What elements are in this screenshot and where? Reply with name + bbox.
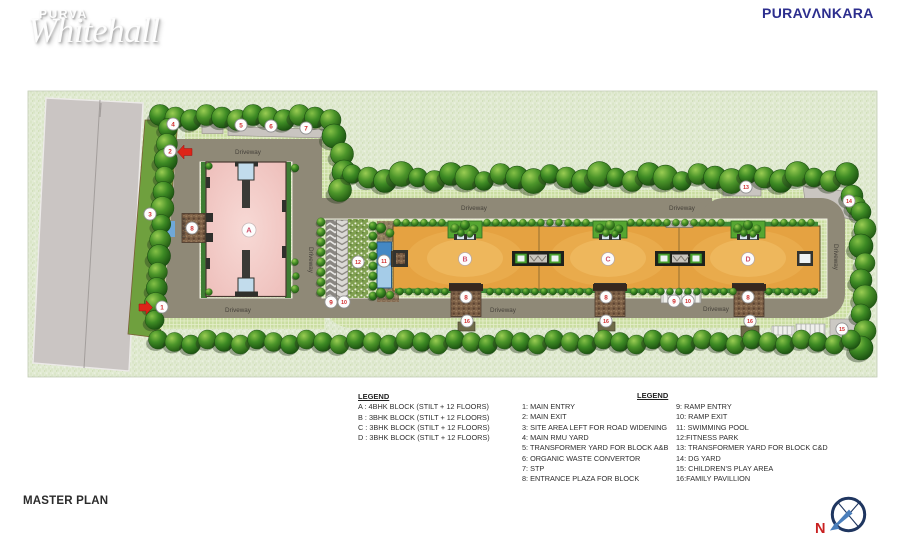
svg-text:8: 8 xyxy=(604,294,608,301)
svg-text:3: 3 xyxy=(148,211,152,218)
svg-text:Driveway: Driveway xyxy=(703,306,730,313)
svg-text:15: 15 xyxy=(839,327,845,333)
svg-text:Driveway: Driveway xyxy=(832,244,839,271)
svg-text:9: 9 xyxy=(672,298,676,305)
svg-text:Driveway: Driveway xyxy=(225,307,252,314)
svg-text:9: 9 xyxy=(329,299,333,306)
svg-text:10: 10 xyxy=(341,300,347,306)
svg-text:8: 8 xyxy=(746,294,750,301)
svg-text:Driveway: Driveway xyxy=(461,205,488,212)
svg-text:N: N xyxy=(815,521,825,537)
svg-text:11: 11 xyxy=(381,259,387,265)
svg-text:B: B xyxy=(462,256,467,263)
svg-text:Driveway: Driveway xyxy=(235,149,262,156)
svg-text:16: 16 xyxy=(747,319,753,325)
svg-text:12: 12 xyxy=(355,260,361,266)
svg-text:2: 2 xyxy=(168,148,172,155)
svg-text:1: 1 xyxy=(160,304,164,311)
svg-text:Driveway: Driveway xyxy=(490,307,517,314)
svg-text:A: A xyxy=(246,226,252,235)
svg-text:14: 14 xyxy=(846,199,852,205)
svg-text:5: 5 xyxy=(239,122,243,129)
svg-text:Driveway: Driveway xyxy=(307,247,314,274)
svg-text:8: 8 xyxy=(190,225,194,232)
svg-text:13: 13 xyxy=(743,185,749,191)
svg-text:7: 7 xyxy=(304,125,308,132)
svg-text:8: 8 xyxy=(464,294,468,301)
svg-text:16: 16 xyxy=(603,319,609,325)
svg-text:D: D xyxy=(745,256,750,263)
svg-text:16: 16 xyxy=(464,319,470,325)
svg-text:C: C xyxy=(605,256,610,263)
svg-text:10: 10 xyxy=(685,299,691,305)
svg-text:Driveway: Driveway xyxy=(669,205,696,212)
svg-text:4: 4 xyxy=(171,121,175,128)
svg-text:6: 6 xyxy=(269,123,273,130)
